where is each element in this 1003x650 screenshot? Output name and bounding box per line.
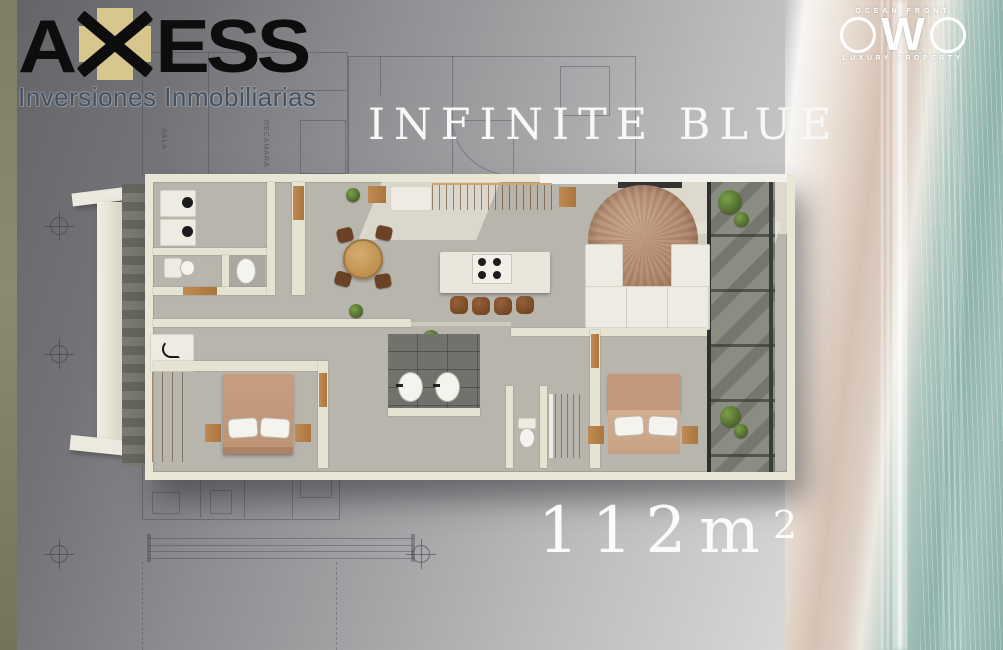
bedroom-door bbox=[591, 334, 599, 368]
pillow bbox=[227, 417, 258, 439]
blueprint-room-label: SALA bbox=[160, 128, 167, 150]
wardrobe bbox=[152, 372, 190, 462]
bed-2-headboard bbox=[608, 374, 680, 412]
blueprint-room-label: RECAMARA bbox=[262, 120, 269, 168]
sink-icon bbox=[236, 258, 256, 284]
entry-post bbox=[97, 202, 123, 442]
apartment-floor-plan bbox=[70, 166, 800, 478]
plant-icon bbox=[734, 212, 749, 227]
left-edge-strip bbox=[0, 0, 17, 650]
nightstand bbox=[682, 426, 698, 444]
bar-stool bbox=[472, 297, 490, 315]
bedroom-door bbox=[319, 373, 327, 407]
kitchen-cabinets bbox=[432, 183, 552, 210]
toilet-bowl bbox=[180, 260, 195, 276]
sofa-arm bbox=[671, 244, 710, 288]
headboard bbox=[223, 447, 293, 454]
poster: SALA RECAMARA OCEAN FRONT W bbox=[0, 0, 1003, 650]
project-title: INFINITE BLUE bbox=[368, 100, 804, 150]
axess-letter-a: A bbox=[18, 13, 73, 81]
owo-luxury-property-label: LUXURY PROPERTY bbox=[829, 55, 977, 62]
faucet-icon bbox=[433, 384, 440, 387]
axess-letters-ess: ESS bbox=[155, 13, 307, 81]
plant-icon bbox=[349, 304, 363, 318]
planter-ledge bbox=[411, 322, 511, 326]
sideboard bbox=[368, 186, 386, 203]
nightstand bbox=[205, 424, 221, 442]
survey-marker-icon bbox=[50, 217, 68, 235]
burner-icon bbox=[478, 271, 486, 279]
faucet-icon bbox=[396, 384, 403, 387]
bar-stool bbox=[450, 296, 468, 314]
toilet-bowl bbox=[519, 428, 535, 448]
pillow bbox=[259, 417, 290, 439]
dining-chair bbox=[375, 224, 394, 241]
plant-icon bbox=[346, 188, 360, 202]
dryer-door bbox=[182, 226, 193, 237]
burner-icon bbox=[493, 271, 501, 279]
survey-marker-icon bbox=[50, 545, 68, 563]
closet-door bbox=[293, 186, 304, 220]
nightstand bbox=[588, 426, 604, 444]
shower-glass bbox=[549, 394, 553, 458]
survey-marker-icon bbox=[412, 545, 430, 563]
beach-aerial-photo bbox=[785, 0, 1003, 650]
area-superscript: 2 bbox=[773, 503, 797, 547]
vanity-sink-icon bbox=[435, 372, 460, 402]
area-label: 112m2 bbox=[538, 494, 797, 568]
sofa-arm bbox=[585, 244, 623, 288]
owo-circle-left-icon bbox=[840, 17, 876, 53]
vanity-sink-icon bbox=[398, 372, 423, 402]
owo-logo: OCEAN FRONT W LUXURY PROPERTY bbox=[829, 8, 977, 62]
kitchen-wood-box bbox=[559, 187, 576, 207]
dining-table bbox=[343, 239, 383, 279]
dining-chair bbox=[374, 273, 392, 290]
burner-icon bbox=[478, 258, 486, 266]
burner-icon bbox=[493, 258, 501, 266]
pillow bbox=[647, 415, 678, 437]
bar-stool bbox=[494, 297, 512, 315]
owo-circle-right-icon bbox=[930, 17, 966, 53]
axess-logo: A ESS Inversiones Inmobiliarias bbox=[18, 8, 317, 113]
survey-marker-icon bbox=[50, 345, 68, 363]
bed-1 bbox=[223, 374, 293, 454]
pillow bbox=[613, 415, 644, 437]
bar-stool bbox=[516, 296, 534, 314]
owo-letter-w: W bbox=[881, 13, 924, 57]
shower-floor bbox=[549, 394, 583, 458]
plant-icon bbox=[734, 424, 748, 438]
balcony-window-frame bbox=[769, 182, 773, 472]
nightstand bbox=[295, 424, 311, 442]
sofa-seat bbox=[585, 286, 710, 330]
area-value: 112m bbox=[538, 494, 773, 568]
washer-door bbox=[182, 197, 193, 208]
axess-cross-icon bbox=[79, 8, 151, 80]
wood-shelf bbox=[183, 287, 217, 295]
desk-lamp-icon bbox=[162, 340, 180, 358]
plant-icon bbox=[718, 190, 742, 214]
kitchen-counter bbox=[390, 186, 432, 211]
